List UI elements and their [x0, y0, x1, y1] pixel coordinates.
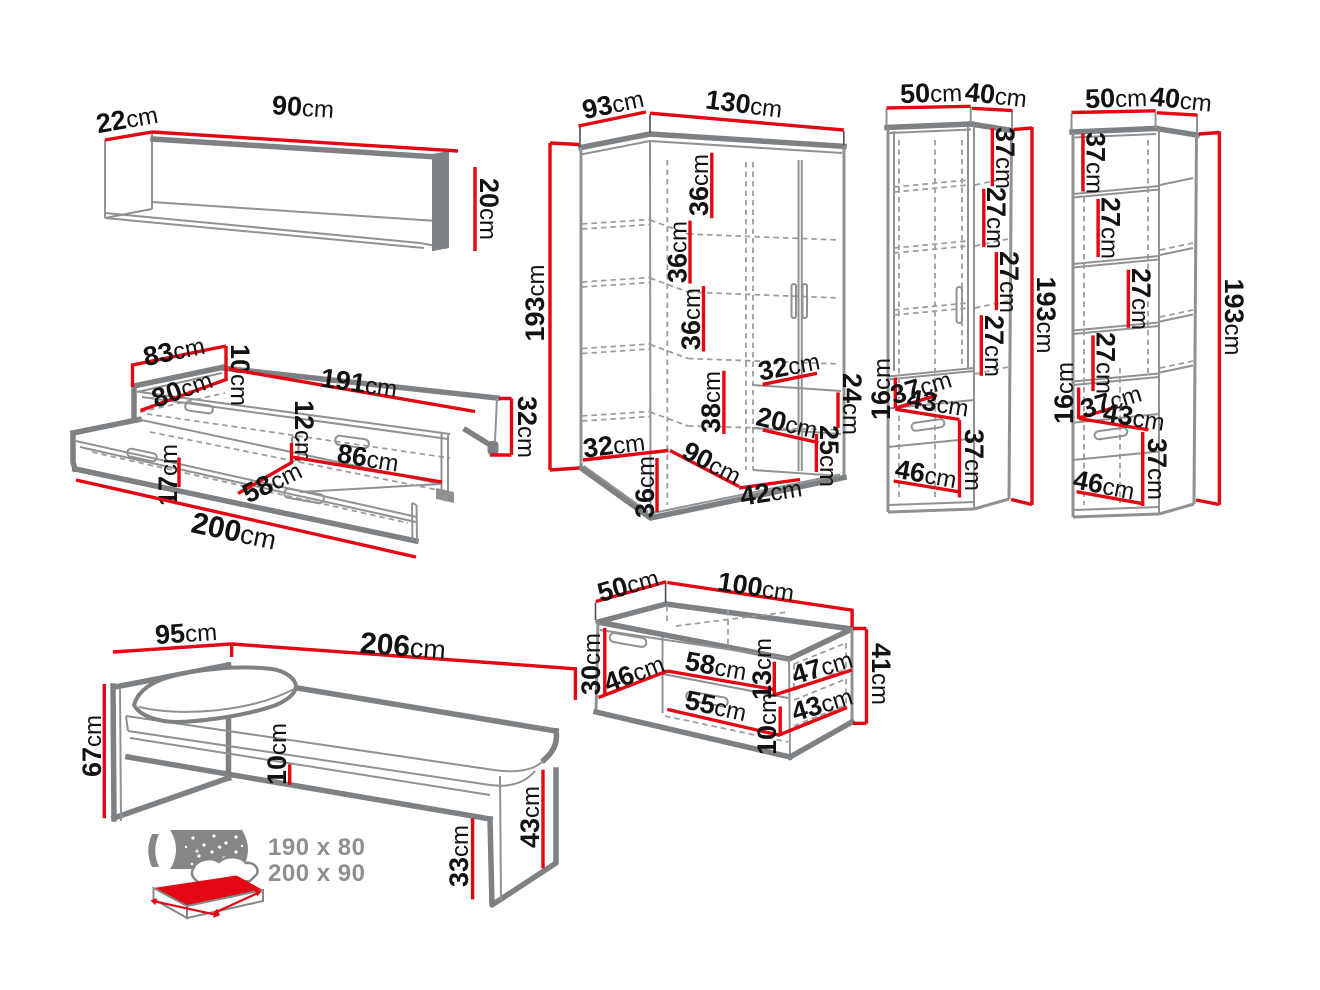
svg-text:27cm: 27cm: [994, 251, 1024, 313]
svg-text:37cm: 37cm: [990, 127, 1020, 189]
svg-text:27cm: 27cm: [981, 187, 1011, 249]
svg-text:193cm: 193cm: [1031, 276, 1061, 353]
svg-text:27cm: 27cm: [1091, 332, 1121, 394]
svg-text:30cm: 30cm: [576, 633, 606, 695]
svg-text:13cm: 13cm: [747, 638, 777, 700]
svg-text:41cm: 41cm: [866, 643, 896, 705]
svg-text:38cm: 38cm: [696, 371, 726, 433]
svg-text:36cm: 36cm: [676, 288, 706, 350]
svg-text:27cm: 27cm: [979, 315, 1009, 377]
svg-text:36cm: 36cm: [630, 456, 660, 518]
svg-text:25cm: 25cm: [814, 425, 844, 487]
svg-text:16cm: 16cm: [1049, 362, 1079, 424]
svg-text:36cm: 36cm: [684, 154, 714, 216]
svg-text:67cm: 67cm: [77, 715, 107, 777]
svg-text:193cm: 193cm: [520, 264, 550, 341]
svg-text:37cm: 37cm: [959, 429, 989, 491]
svg-text:33cm: 33cm: [444, 825, 474, 887]
svg-text:50cm: 50cm: [899, 77, 962, 109]
svg-text:10cm: 10cm: [225, 344, 255, 406]
svg-text:27cm: 27cm: [1126, 268, 1156, 330]
svg-text:32cm: 32cm: [512, 396, 542, 458]
svg-text:50cm: 50cm: [1084, 82, 1147, 114]
svg-text:36cm: 36cm: [663, 221, 693, 283]
svg-text:27cm: 27cm: [1096, 197, 1126, 259]
svg-text:12cm: 12cm: [289, 400, 319, 462]
svg-text:37cm: 37cm: [1081, 132, 1111, 194]
svg-text:190 x 80: 190 x 80: [268, 834, 365, 861]
svg-text:10cm: 10cm: [262, 723, 292, 785]
svg-text:95cm: 95cm: [154, 616, 218, 650]
svg-text:37cm: 37cm: [1142, 438, 1172, 500]
svg-text:10cm: 10cm: [752, 693, 782, 755]
svg-text:43cm: 43cm: [515, 786, 545, 848]
svg-text:200 x 90: 200 x 90: [268, 860, 365, 887]
svg-text:20cm: 20cm: [474, 178, 504, 240]
svg-text:193cm: 193cm: [1219, 278, 1249, 355]
